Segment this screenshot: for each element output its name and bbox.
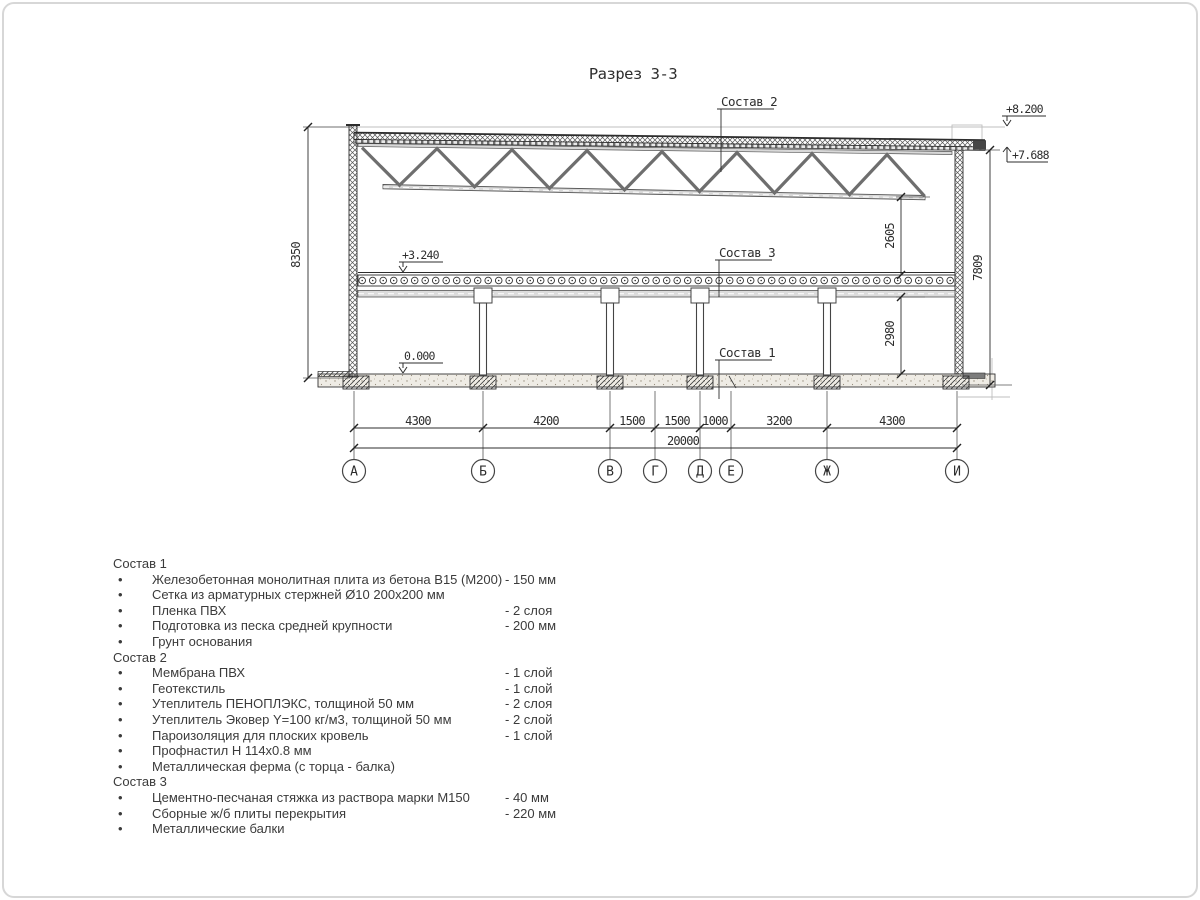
legend-item-name: Сетка из арматурных стержней Ø10 200х200… (152, 587, 505, 603)
legend-item: •Пленка ПВХ- 2 слоя (113, 603, 613, 619)
legend-item-qty: - 1 слой (505, 681, 613, 697)
legend-item-name: Металлические балки (152, 821, 505, 837)
dim-segment: 4200 (533, 414, 559, 428)
legend-section-title: Состав 2 (113, 650, 613, 666)
axis-lines (354, 391, 957, 459)
legend-item-name: Мембрана ПВХ (152, 665, 505, 681)
legend-item-name: Геотекстиль (152, 681, 505, 697)
bullet-icon: • (113, 603, 152, 619)
foundation-pad (943, 376, 969, 389)
bullet-icon: • (113, 743, 152, 759)
legend-item: •Цементно-песчаная стяжка из раствора ма… (113, 790, 613, 806)
dim-segment: 3200 (766, 414, 792, 428)
bullet-icon: • (113, 759, 152, 775)
legend-item-name: Цементно-песчаная стяжка из раствора мар… (152, 790, 505, 806)
legend-item-qty (505, 587, 613, 603)
legend: Состав 1•Железобетонная монолитная плита… (113, 556, 613, 837)
elevation-floor-label: +3.240 (402, 248, 440, 262)
elevation-ground (399, 363, 443, 373)
legend-item: •Железобетонная монолитная плита из бето… (113, 572, 613, 588)
axis-label: В (606, 465, 614, 480)
column (818, 288, 836, 375)
dim-left-height: 8350 (289, 242, 303, 268)
dim-segment: 1500 (664, 414, 690, 428)
legend-section-title: Состав 1 (113, 556, 613, 572)
legend-item-name: Пленка ПВХ (152, 603, 505, 619)
legend-item: •Мембрана ПВХ- 1 слой (113, 665, 613, 681)
legend-item-qty (505, 821, 613, 837)
callout-sostav2: Состав 2 (721, 94, 777, 109)
legend-item-name: Грунт основания (152, 634, 505, 650)
legend-section-title: Состав 3 (113, 774, 613, 790)
ground-slab (318, 372, 995, 389)
callout-sostav1: Состав 1 (719, 345, 775, 360)
axis-label: И (953, 465, 961, 480)
floor-slab (358, 273, 955, 298)
dim-right-total: 7809 (971, 255, 985, 281)
legend-item-qty: - 40 мм (505, 790, 613, 806)
elevation-roof-bearing-label: +7.688 (1012, 148, 1050, 162)
roof-edge-cap (973, 141, 986, 150)
bullet-icon: • (113, 572, 152, 588)
legend-item: •Металлические балки (113, 821, 613, 837)
axis-label: Е (727, 465, 735, 480)
legend-item: •Пароизоляция для плоских кровель- 1 сло… (113, 728, 613, 744)
legend-item-name: Утеплитель ПЕНОПЛЭКС, толщиной 50 мм (152, 696, 505, 712)
legend-item-name: Железобетонная монолитная плита из бетон… (152, 572, 505, 588)
legend-item: •Утеплитель ПЕНОПЛЭКС, толщиной 50 мм- 2… (113, 696, 613, 712)
elevation-roof-top (1002, 116, 1046, 126)
axis-label: А (350, 465, 358, 480)
bullet-icon: • (113, 728, 152, 744)
callout-sostav3: Состав 3 (719, 245, 775, 260)
legend-item-name: Утеплитель Эковер Y=100 кг/м3, толщиной … (152, 712, 505, 728)
dim-segment: 1000 (702, 414, 728, 428)
bullet-icon: • (113, 587, 152, 603)
elevation-roof-top-label: +8.200 (1006, 102, 1044, 116)
horizontal-dimensions (354, 428, 957, 448)
legend-item-qty (505, 634, 613, 650)
foundation-pad (597, 376, 623, 389)
axis-label: Д (696, 465, 704, 480)
legend-item-qty: - 1 слой (505, 665, 613, 681)
legend-item-qty (505, 759, 613, 775)
legend-item-name: Пароизоляция для плоских кровель (152, 728, 505, 744)
elevation-floor (399, 262, 443, 272)
legend-item: •Сетка из арматурных стержней Ø10 200х20… (113, 587, 613, 603)
bullet-icon: • (113, 821, 152, 837)
legend-item: •Грунт основания (113, 634, 613, 650)
right-wall (955, 148, 963, 374)
axis-label: Б (479, 465, 487, 480)
axis-label: Г (651, 465, 659, 480)
column (474, 288, 492, 375)
column (691, 288, 709, 375)
legend-item-name: Подготовка из песка средней крупности (152, 618, 505, 634)
legend-item-qty: - 150 мм (505, 572, 613, 588)
dim-upper-right: 2605 (883, 223, 897, 249)
bullet-icon: • (113, 681, 152, 697)
bullet-icon: • (113, 790, 152, 806)
roof-truss (358, 144, 952, 200)
foundation-pad (814, 376, 840, 389)
legend-item-qty: - 200 мм (505, 618, 613, 634)
bullet-icon: • (113, 634, 152, 650)
foundation-pad (687, 376, 713, 389)
dim-overall: 20000 (667, 434, 700, 448)
section-drawing: Разрез 3-3 (0, 0, 1200, 545)
legend-item-name: Металлическая ферма (с торца - балка) (152, 759, 505, 775)
left-wall (349, 125, 357, 377)
legend-item-qty: - 2 слой (505, 712, 613, 728)
legend-item-qty: - 1 слой (505, 728, 613, 744)
legend-item-name: Сборные ж/б плиты перекрытия (152, 806, 505, 822)
column (601, 288, 619, 375)
legend-item-qty (505, 743, 613, 759)
bullet-icon: • (113, 806, 152, 822)
dim-lower-right: 2980 (883, 321, 897, 347)
legend-item: •Геотекстиль- 1 слой (113, 681, 613, 697)
bullet-icon: • (113, 712, 152, 728)
columns (474, 288, 836, 375)
legend-item: •Утеплитель Эковер Y=100 кг/м3, толщиной… (113, 712, 613, 728)
legend-item-name: Профнастил Н 114х0.8 мм (152, 743, 505, 759)
bullet-icon: • (113, 618, 152, 634)
floor-beams (358, 291, 955, 298)
drawing-title: Разрез 3-3 (589, 65, 677, 83)
legend-item: •Металлическая ферма (с торца - балка) (113, 759, 613, 775)
legend-item-qty: - 220 мм (505, 806, 613, 822)
legend-item: •Сборные ж/б плиты перекрытия- 220 мм (113, 806, 613, 822)
legend-item: •Профнастил Н 114х0.8 мм (113, 743, 613, 759)
axis-label: Ж (823, 465, 831, 480)
bullet-icon: • (113, 696, 152, 712)
dim-segment: 1500 (619, 414, 645, 428)
legend-item-qty: - 2 слоя (505, 603, 613, 619)
dim-segment: 4300 (879, 414, 905, 428)
dim-segment: 4300 (405, 414, 431, 428)
foundation-pad (470, 376, 496, 389)
bullet-icon: • (113, 665, 152, 681)
elevation-ground-label: 0.000 (404, 349, 435, 363)
hollow-core-slabs (358, 275, 955, 286)
legend-item: •Подготовка из песка средней крупности- … (113, 618, 613, 634)
legend-item-qty: - 2 слоя (505, 696, 613, 712)
